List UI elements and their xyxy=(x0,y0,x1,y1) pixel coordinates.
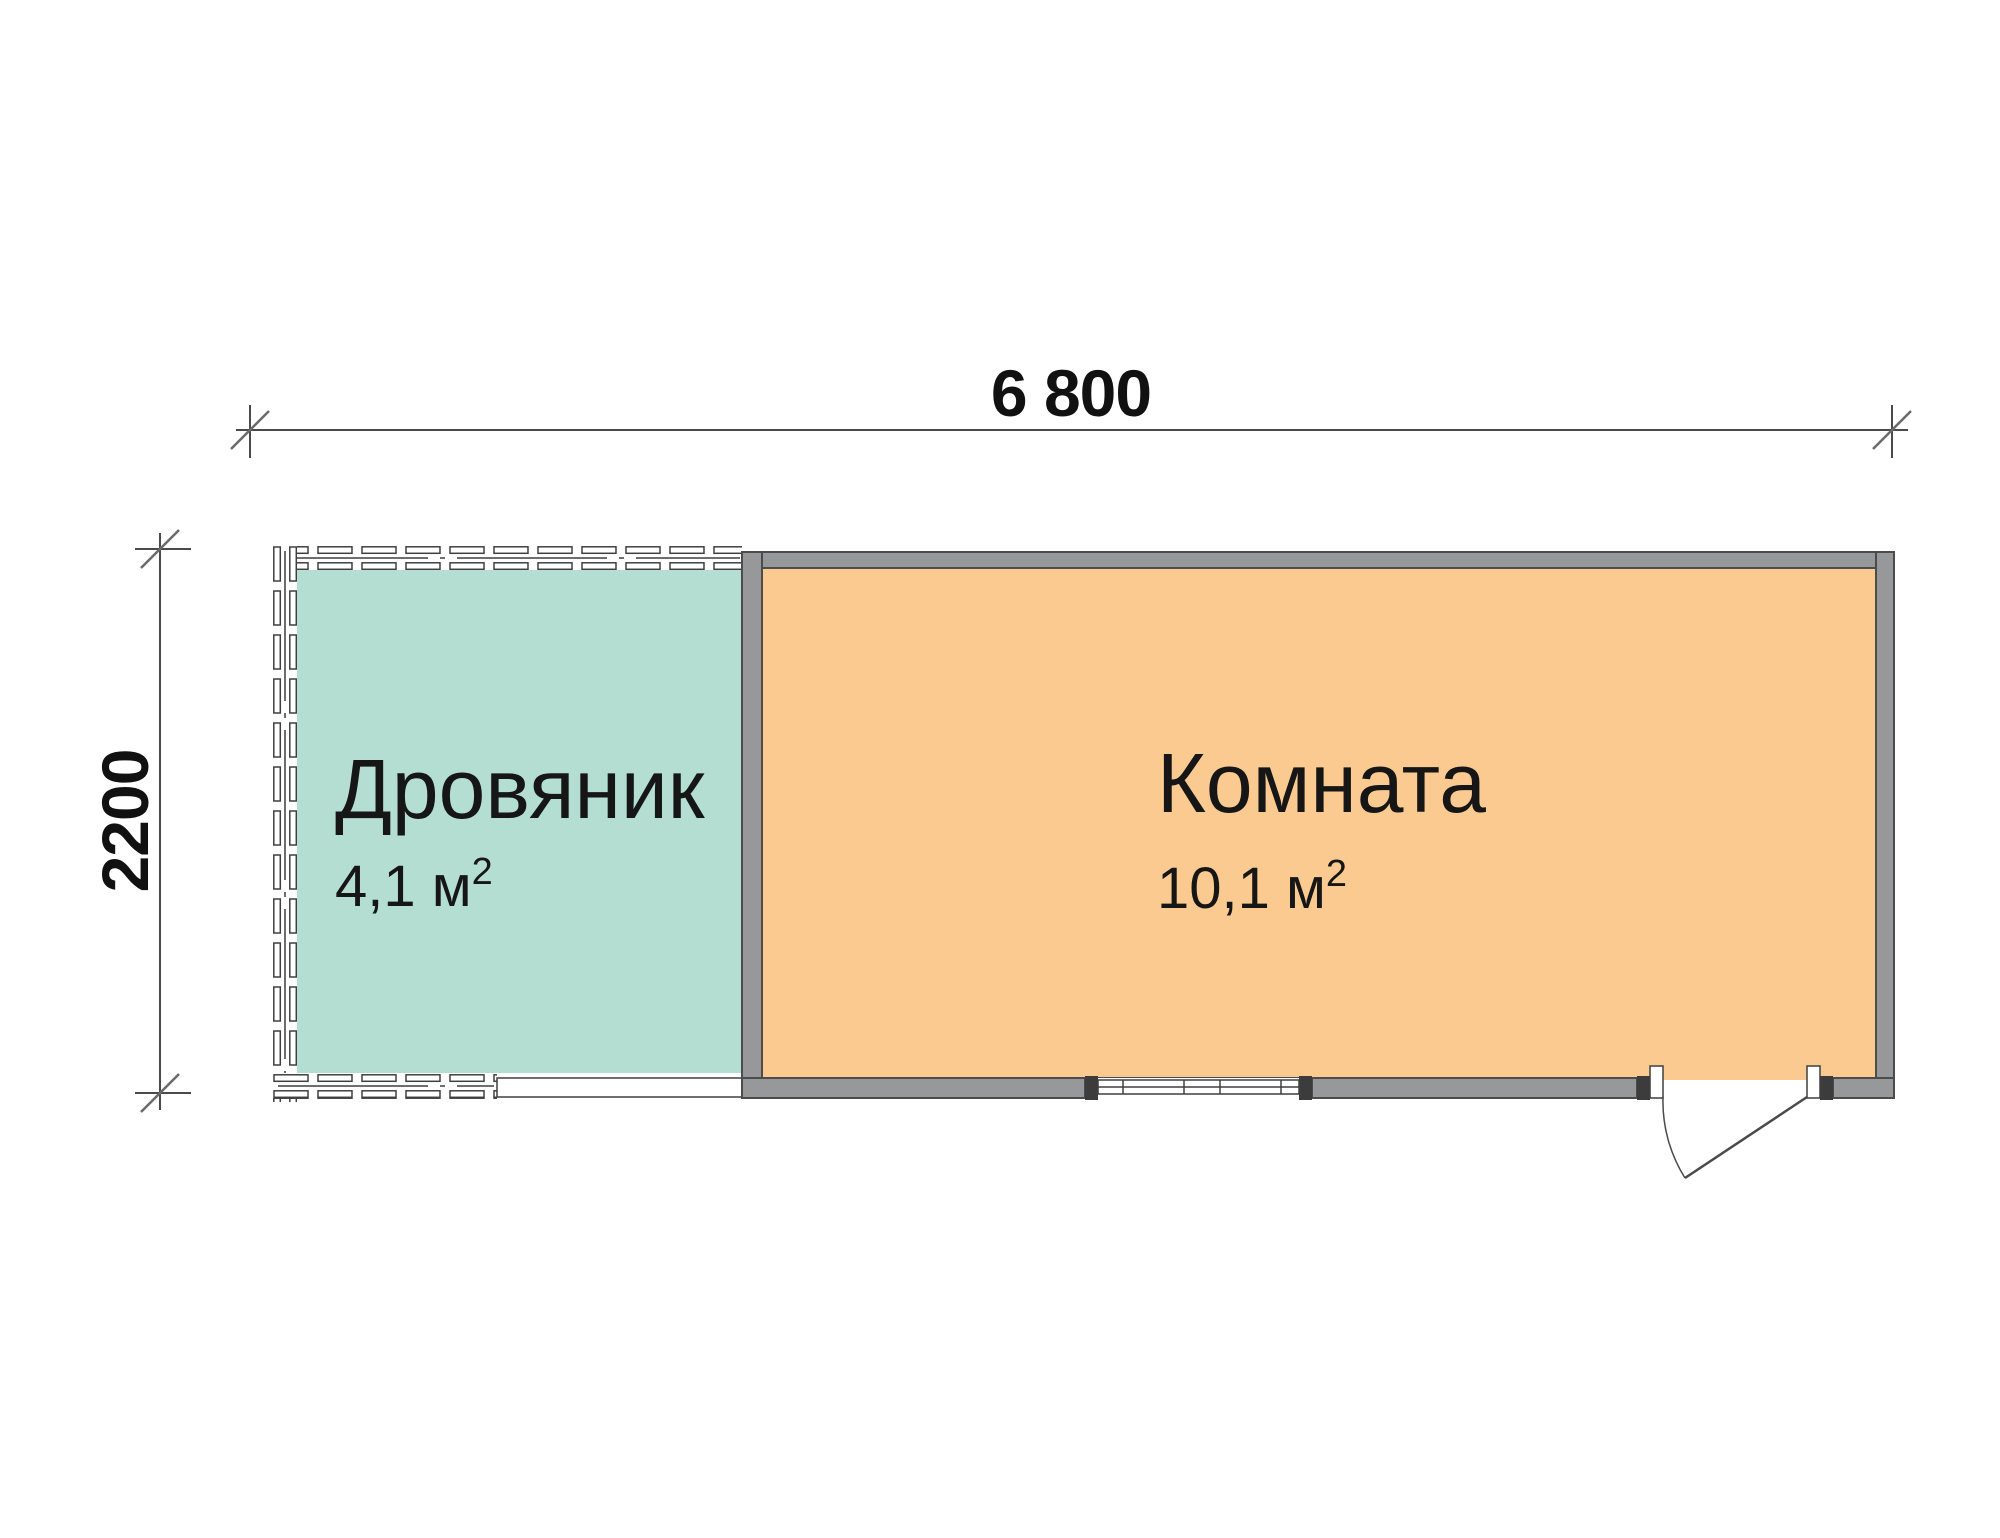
main-right-wall xyxy=(1876,552,1894,1098)
main-bottom-wall-segment-2 xyxy=(1312,1078,1637,1098)
room-area-woodshed-value: 4,1 м xyxy=(335,854,472,919)
door-right-wall-cap xyxy=(1820,1076,1833,1100)
door-swing-arc xyxy=(1663,1097,1685,1178)
door-leaf xyxy=(1685,1097,1807,1178)
height-dimension-label: 2200 xyxy=(88,750,162,893)
width-dimension-label: 6 800 xyxy=(991,356,1151,430)
room-name-woodshed: Дровяник xyxy=(335,742,706,836)
main-top-wall xyxy=(742,552,1894,568)
room-area-woodshed-sup: 2 xyxy=(472,851,493,893)
door xyxy=(1650,1066,1820,1178)
room-area-main-sup: 2 xyxy=(1326,853,1347,895)
floor-plan-canvas: 6 800 2200 Дровяник 4,1 м2 xyxy=(0,0,2000,1538)
room-woodshed: Дровяник 4,1 м2 xyxy=(273,546,742,1102)
main-partition-wall xyxy=(742,552,762,1098)
main-bottom-wall-segment-3 xyxy=(1833,1078,1894,1098)
room-main: Комната 10,1 м2 xyxy=(742,552,1894,1178)
window-left-wall-cap xyxy=(1085,1076,1098,1100)
woodshed-bottom-wall-plain xyxy=(497,1078,742,1097)
room-name-main: Комната xyxy=(1157,736,1486,830)
door-right-jamb xyxy=(1807,1066,1820,1098)
floor-plan: 6 800 2200 Дровяник 4,1 м2 xyxy=(0,0,2000,1538)
width-dimension: 6 800 xyxy=(231,356,1911,458)
room-area-main: 10,1 м2 xyxy=(1157,853,1347,921)
window xyxy=(1098,1078,1299,1098)
door-left-wall-cap xyxy=(1637,1076,1650,1100)
room-area-main-value: 10,1 м xyxy=(1157,856,1326,921)
height-dimension: 2200 xyxy=(88,530,191,1112)
window-right-wall-cap xyxy=(1299,1076,1312,1100)
room-area-woodshed: 4,1 м2 xyxy=(335,851,493,919)
main-bottom-wall-segment-1 xyxy=(742,1078,1085,1098)
door-left-jamb xyxy=(1650,1066,1663,1098)
